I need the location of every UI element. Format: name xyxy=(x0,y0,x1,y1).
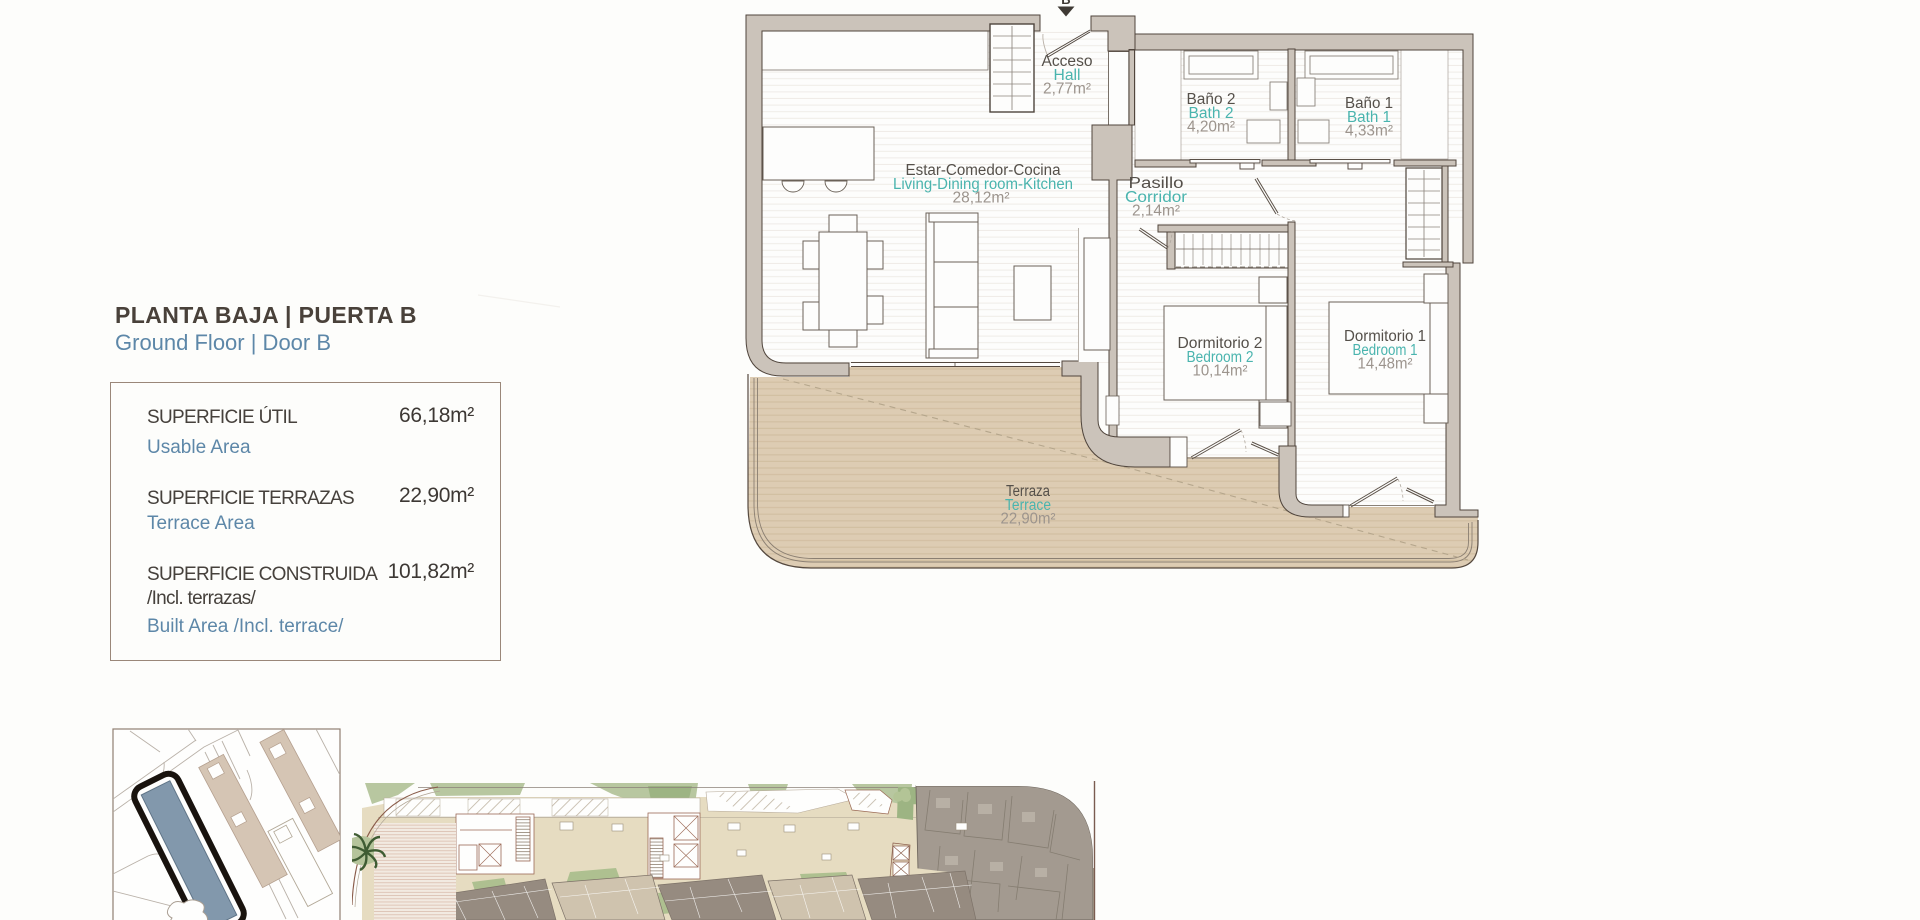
svg-text:22,90m²: 22,90m² xyxy=(1001,511,1056,528)
svg-text:B: B xyxy=(1061,0,1070,7)
svg-text:4,33m²: 4,33m² xyxy=(1345,123,1393,140)
svg-text:2,77m²: 2,77m² xyxy=(1043,81,1091,98)
svg-text:10,14m²: 10,14m² xyxy=(1193,363,1248,380)
svg-text:4,20m²: 4,20m² xyxy=(1187,119,1235,136)
svg-text:14,48m²: 14,48m² xyxy=(1358,356,1413,373)
svg-text:28,12m²: 28,12m² xyxy=(953,190,1010,207)
svg-text:2,14m²: 2,14m² xyxy=(1132,203,1180,220)
